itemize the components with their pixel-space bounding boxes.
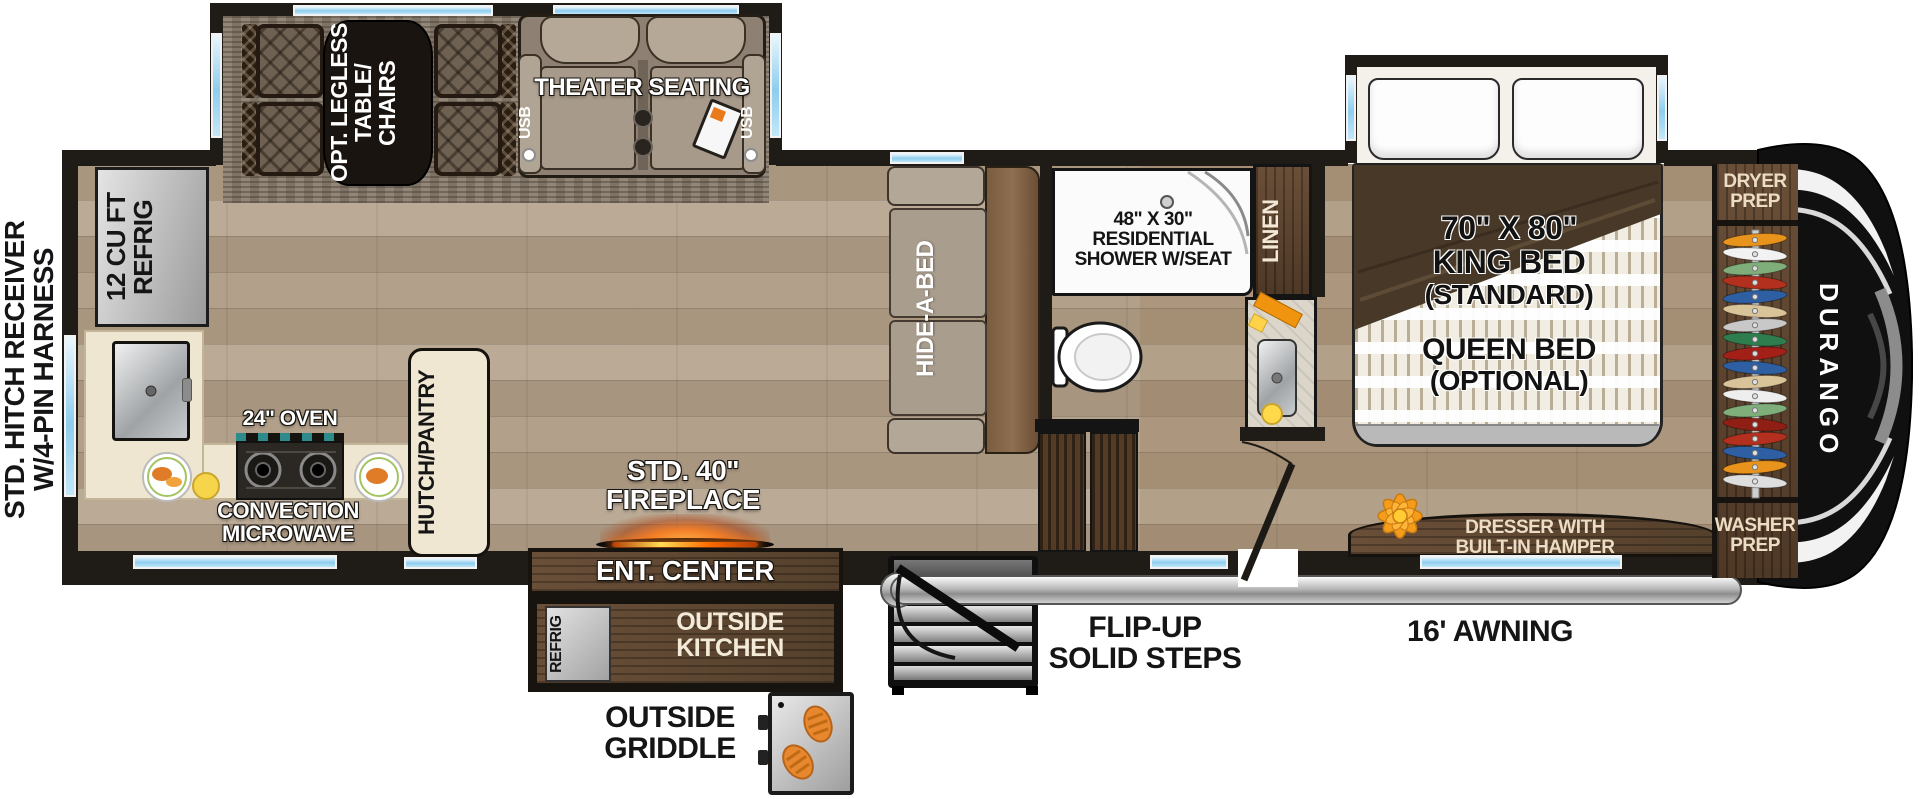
chair-frame bbox=[500, 102, 516, 176]
window-slide-left bbox=[211, 33, 222, 138]
dinette-table-label: OPT. LEGLESSTABLE/CHAIRS bbox=[328, 24, 428, 182]
ent-center-label: ENT. CENTER bbox=[540, 556, 830, 585]
wardrobe-divider bbox=[1712, 220, 1798, 226]
sofa-back bbox=[985, 166, 1040, 454]
step-threshold bbox=[1035, 419, 1139, 432]
window-left-wall bbox=[64, 335, 76, 497]
stove bbox=[236, 441, 344, 500]
bath-sink bbox=[1257, 339, 1297, 417]
king-bed-label: 70" X 80"KING BED(STANDARD) bbox=[1368, 212, 1650, 309]
window-bottom-kitchen bbox=[133, 555, 337, 569]
dinette-chair bbox=[256, 102, 324, 176]
queen-bed-label: QUEEN BED(OPTIONAL) bbox=[1368, 334, 1650, 397]
step-foot bbox=[892, 686, 904, 695]
window-bed-right bbox=[1657, 75, 1667, 141]
step-tread bbox=[894, 666, 1032, 680]
outside-kitchen-label: OUTSIDEKITCHEN bbox=[625, 609, 835, 661]
bath-wall-left bbox=[1040, 164, 1052, 440]
wardrobe-divider bbox=[1712, 497, 1798, 503]
outside-refrig-label: REFRIG bbox=[549, 610, 607, 678]
dinette-chair bbox=[256, 24, 324, 98]
awning-label: 16' AWNING bbox=[1360, 616, 1620, 647]
mattress-foot-band bbox=[1356, 424, 1659, 444]
step-tread bbox=[894, 606, 1032, 622]
pillow bbox=[1512, 78, 1644, 160]
bedroom-step bbox=[1090, 432, 1138, 552]
dinette-chair bbox=[434, 24, 502, 98]
window-bottom-bedroom bbox=[1420, 555, 1622, 569]
theater-label: THEATER SEATING bbox=[510, 76, 774, 101]
slide-bed-wall-top bbox=[1345, 55, 1668, 67]
sofa-label: HIDE-A-BED bbox=[914, 196, 962, 422]
faucet bbox=[182, 378, 192, 402]
usb-label-right: USB bbox=[740, 96, 762, 150]
tablet-screen-accent bbox=[710, 107, 726, 122]
wall-top-left bbox=[62, 150, 216, 166]
window-bed-left bbox=[1346, 75, 1356, 141]
step-tread bbox=[894, 626, 1032, 642]
griddle-label: OUTSIDEGRIDDLE bbox=[580, 702, 760, 764]
refrigerator-label: 12 CU FTREFRIG bbox=[103, 172, 201, 322]
hitch-note: STD. HITCH RECEIVERW/4-PIN HARNESS bbox=[0, 168, 62, 572]
dinette-chair bbox=[434, 102, 502, 176]
theater-back-right bbox=[646, 16, 746, 64]
brand-label: DURANGO bbox=[1804, 226, 1842, 516]
usb-label-left: USB bbox=[518, 96, 540, 150]
window-slide-top-1 bbox=[293, 5, 493, 16]
window-bottom-hall bbox=[1150, 555, 1228, 569]
theater-back-left bbox=[540, 16, 640, 64]
window-bottom-hutch bbox=[404, 557, 477, 569]
floorplan-canvas: OPT. LEGLESSTABLE/CHAIRS 12 CU FTREFRIG … bbox=[0, 0, 1920, 799]
outside-griddle bbox=[768, 692, 854, 795]
steps-label: FLIP-UPSOLID STEPS bbox=[1020, 612, 1270, 674]
hutch-pantry-label: HUTCH/PANTRY bbox=[416, 356, 482, 549]
bath-wall-right bbox=[1312, 164, 1325, 297]
microwave-label: CONVECTIONMICROWAVE bbox=[185, 500, 391, 546]
bath-wall-bottom bbox=[1240, 427, 1325, 441]
pillow bbox=[1368, 78, 1500, 160]
step-foot bbox=[1026, 686, 1038, 695]
washer-prep-label: WASHERPREP bbox=[1714, 516, 1796, 556]
window-top-mid bbox=[890, 152, 964, 164]
oven-label: 24" OVEN bbox=[230, 408, 350, 430]
entry-door-gap bbox=[1238, 549, 1298, 587]
linen-label: LINEN bbox=[1260, 172, 1306, 290]
bedroom-step bbox=[1038, 432, 1086, 552]
step-tread bbox=[894, 646, 1032, 662]
kitchen-sink bbox=[112, 341, 190, 441]
dresser-label: DRESSER WITHBUILT-IN HAMPER bbox=[1410, 518, 1660, 558]
awning-tube bbox=[890, 575, 1742, 605]
shower-label: 48" X 30"RESIDENTIALSHOWER W/SEAT bbox=[1058, 210, 1248, 269]
fireplace-flame bbox=[612, 542, 758, 547]
dryer-prep-label: DRYERPREP bbox=[1714, 172, 1796, 212]
sofa-arm-bottom bbox=[887, 418, 985, 454]
fireplace-label: STD. 40"FIREPLACE bbox=[590, 456, 776, 514]
